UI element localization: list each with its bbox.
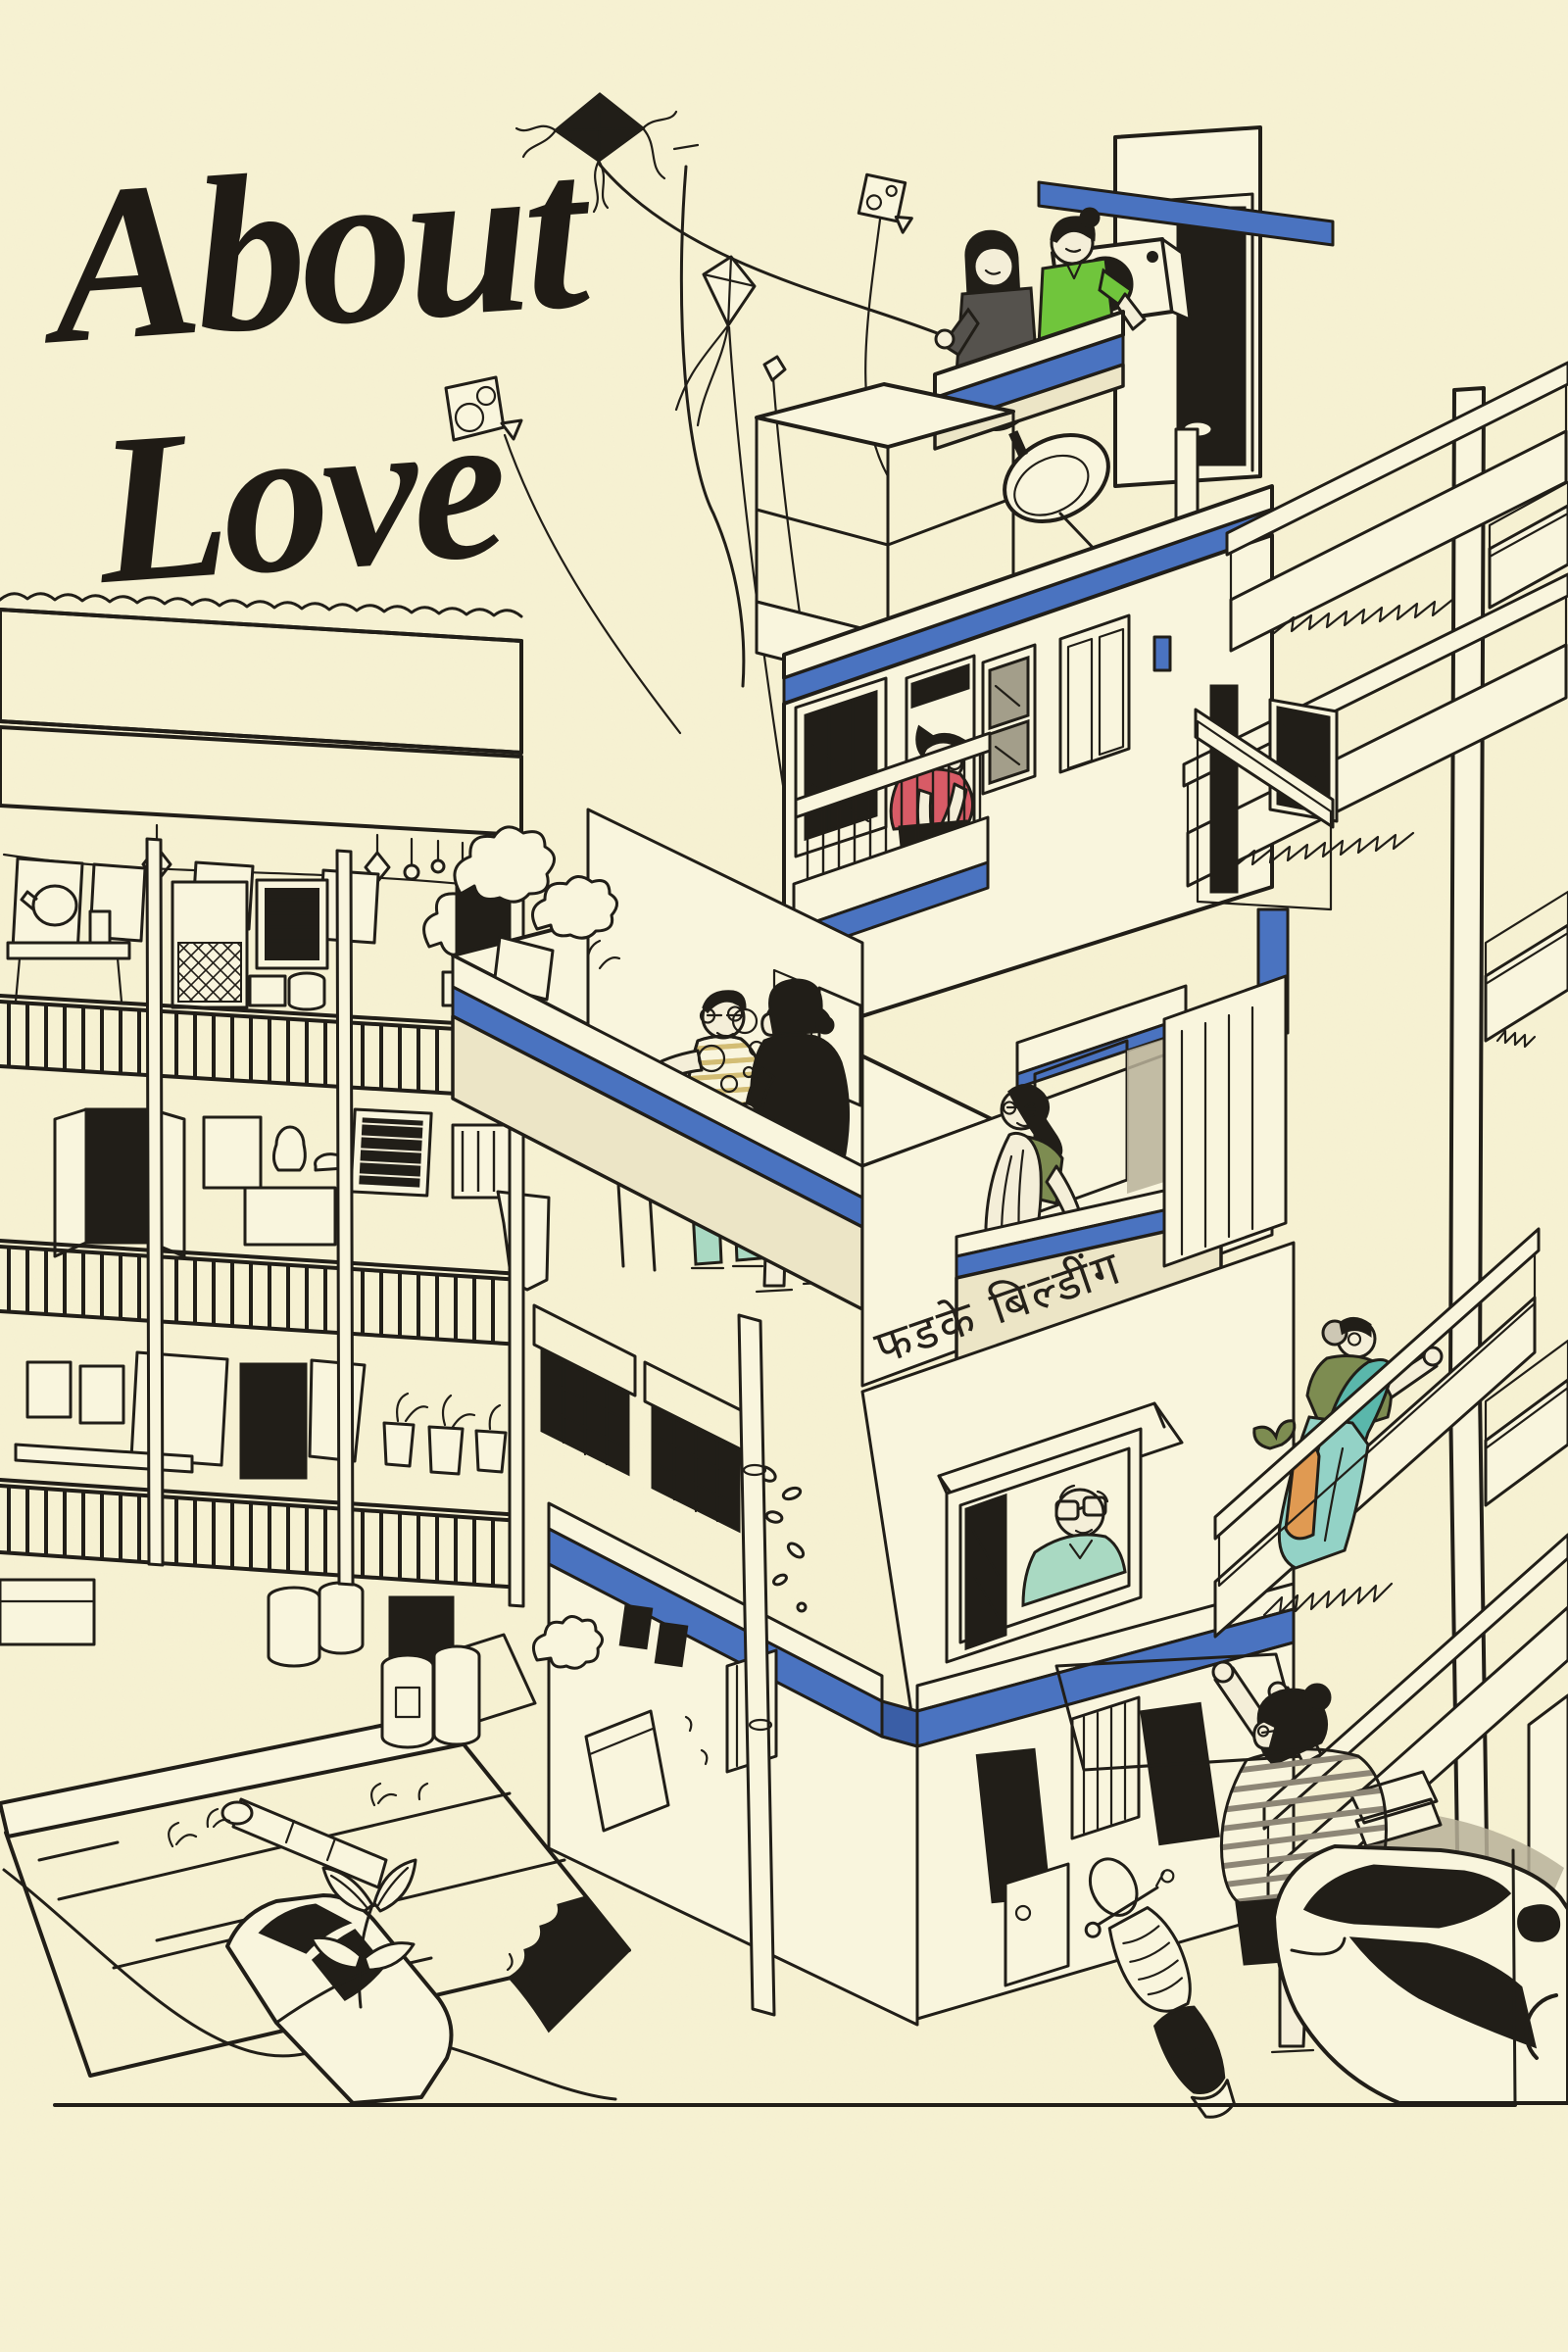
stacked-barrels — [269, 1583, 363, 1666]
wall-edge-right — [1513, 1850, 1515, 2103]
picture-frame — [204, 1117, 261, 1188]
dark-slit-window — [1211, 686, 1237, 892]
cupboard — [1005, 1864, 1068, 1985]
side-mirror — [1519, 1906, 1559, 1941]
open-double-door — [55, 1109, 184, 1256]
title-line2: Love — [88, 366, 511, 629]
metal-trunk — [0, 1580, 94, 1644]
barred-window-small — [453, 1125, 514, 1198]
sash-window — [983, 645, 1035, 794]
small-frame — [80, 1366, 123, 1423]
sliding-door — [172, 882, 247, 1007]
blue-accent-small — [1154, 637, 1170, 670]
shuttered-window — [351, 1109, 431, 1196]
illustration-canvas: About Love — [0, 0, 1568, 2352]
courtyard-barrels — [382, 1646, 479, 1747]
title-line1: About — [31, 107, 601, 392]
louver-window-pair — [1060, 615, 1129, 772]
dark-doorway — [241, 1364, 306, 1478]
hanging-sheet — [131, 1352, 227, 1465]
woman-hand — [936, 330, 954, 348]
curtain-window — [257, 880, 327, 968]
small-frame — [27, 1362, 71, 1417]
poster: About Love — [0, 0, 1568, 2352]
